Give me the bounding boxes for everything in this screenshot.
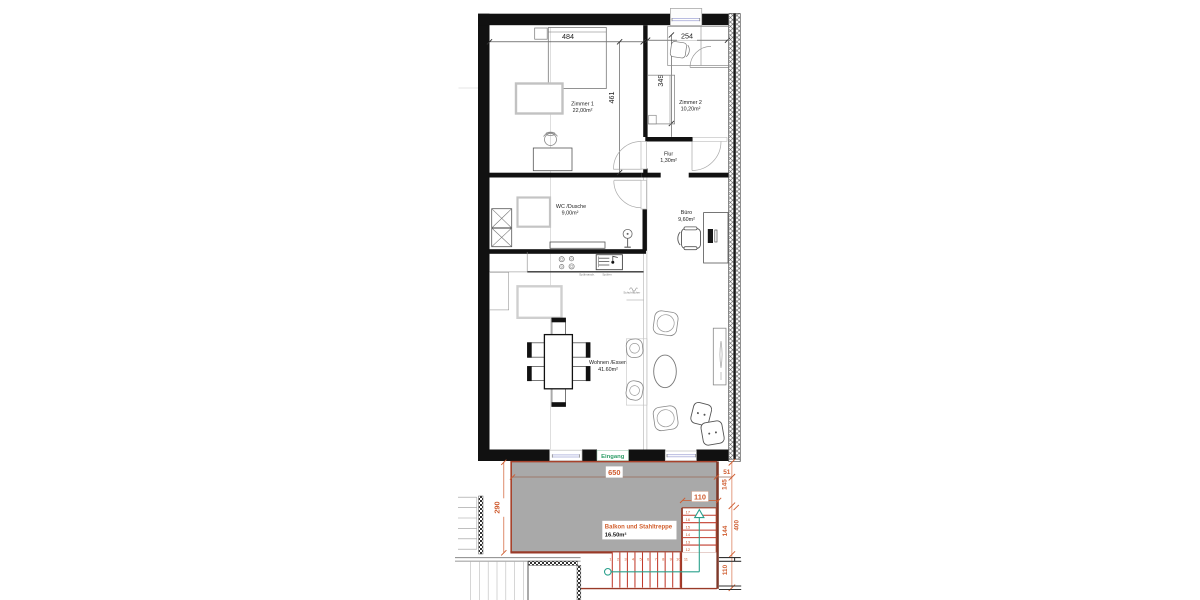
svg-text:WC /Dusche: WC /Dusche bbox=[556, 204, 586, 210]
svg-text:110: 110 bbox=[722, 564, 729, 575]
svg-text:349: 349 bbox=[656, 75, 665, 87]
svg-text:290: 290 bbox=[492, 501, 501, 513]
svg-text:10: 10 bbox=[676, 556, 681, 561]
svg-text:461: 461 bbox=[607, 92, 616, 104]
svg-text:9,60m²: 9,60m² bbox=[678, 217, 695, 223]
svg-text:Büro: Büro bbox=[681, 210, 692, 216]
svg-text:51: 51 bbox=[723, 469, 731, 476]
svg-text:650: 650 bbox=[608, 468, 620, 477]
svg-text:16: 16 bbox=[686, 517, 691, 522]
svg-text:Spülmasch.: Spülmasch. bbox=[579, 273, 595, 277]
svg-text:Zimmer 2: Zimmer 2 bbox=[679, 100, 702, 106]
svg-text:17: 17 bbox=[686, 510, 691, 515]
svg-text:9,00m²: 9,00m² bbox=[562, 211, 579, 217]
svg-text:Eingang: Eingang bbox=[601, 454, 625, 460]
svg-text:Wohnen /Essen: Wohnen /Essen bbox=[589, 360, 627, 366]
svg-text:15: 15 bbox=[686, 525, 691, 530]
svg-text:Balkon und Stahltreppe: Balkon und Stahltreppe bbox=[605, 525, 673, 531]
svg-text:400: 400 bbox=[733, 520, 740, 531]
svg-text:Schuhfächer: Schuhfächer bbox=[623, 291, 640, 295]
svg-text:110: 110 bbox=[694, 492, 706, 501]
svg-text:484: 484 bbox=[562, 32, 574, 41]
svg-text:145: 145 bbox=[722, 479, 729, 490]
svg-text:22,00m²: 22,00m² bbox=[573, 108, 593, 114]
svg-text:10,20m²: 10,20m² bbox=[681, 106, 701, 112]
svg-text:1,30m²: 1,30m² bbox=[660, 158, 677, 164]
svg-text:Zimmer 1: Zimmer 1 bbox=[571, 102, 594, 108]
svg-text:12: 12 bbox=[686, 547, 691, 552]
svg-text:14: 14 bbox=[686, 532, 691, 537]
svg-text:254: 254 bbox=[681, 31, 693, 40]
svg-text:16.50m²: 16.50m² bbox=[605, 532, 627, 539]
svg-text:13: 13 bbox=[686, 540, 691, 545]
svg-text:Spülen: Spülen bbox=[602, 273, 612, 277]
svg-text:41.60m²: 41.60m² bbox=[598, 367, 618, 373]
svg-text:Flur: Flur bbox=[664, 151, 673, 157]
svg-text:144: 144 bbox=[722, 525, 729, 536]
